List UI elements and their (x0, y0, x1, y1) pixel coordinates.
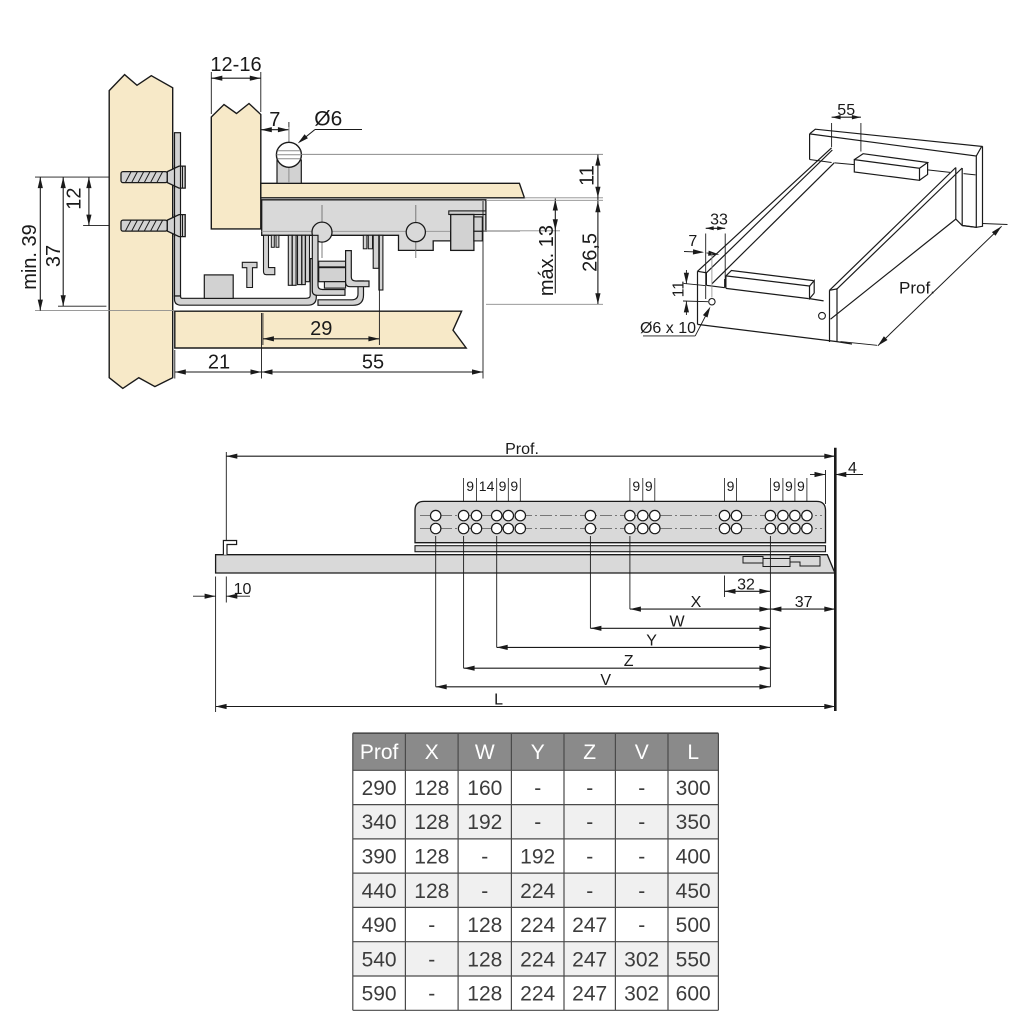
svg-text:-: - (481, 846, 488, 869)
svg-text:32: 32 (737, 576, 755, 593)
svg-text:55: 55 (362, 352, 384, 374)
svg-text:37: 37 (795, 594, 813, 611)
svg-text:W: W (669, 613, 685, 630)
svg-text:9: 9 (773, 478, 781, 494)
svg-text:V: V (635, 741, 649, 764)
svg-text:Prof.: Prof. (505, 441, 539, 458)
svg-text:Prof: Prof (360, 741, 399, 764)
svg-text:10: 10 (234, 581, 252, 598)
svg-text:-: - (586, 811, 593, 834)
svg-text:400: 400 (676, 846, 711, 869)
svg-text:224: 224 (520, 880, 555, 903)
svg-text:12-16: 12-16 (210, 54, 261, 76)
svg-text:7: 7 (269, 109, 280, 131)
svg-text:247: 247 (572, 914, 607, 937)
svg-text:-: - (586, 846, 593, 869)
svg-text:9: 9 (645, 478, 653, 494)
svg-text:-: - (638, 777, 645, 800)
svg-text:9: 9 (727, 478, 735, 494)
svg-text:600: 600 (676, 983, 711, 1006)
svg-text:128: 128 (467, 914, 502, 937)
svg-text:247: 247 (572, 983, 607, 1006)
svg-text:37: 37 (43, 245, 65, 267)
svg-text:440: 440 (362, 880, 397, 903)
svg-text:290: 290 (362, 777, 397, 800)
svg-text:9: 9 (466, 478, 474, 494)
svg-text:W: W (475, 741, 495, 764)
svg-text:590: 590 (362, 983, 397, 1006)
svg-text:Ø6: Ø6 (314, 108, 342, 131)
svg-text:-: - (638, 811, 645, 834)
svg-text:12: 12 (64, 187, 86, 209)
svg-text:550: 550 (676, 948, 711, 971)
svg-text:9: 9 (785, 478, 793, 494)
svg-text:9: 9 (510, 478, 518, 494)
svg-text:-: - (586, 777, 593, 800)
svg-text:224: 224 (520, 983, 555, 1006)
svg-text:-: - (638, 914, 645, 937)
svg-text:9: 9 (797, 478, 805, 494)
svg-text:128: 128 (414, 811, 449, 834)
svg-text:-: - (481, 880, 488, 903)
svg-text:490: 490 (362, 914, 397, 937)
svg-text:390: 390 (362, 846, 397, 869)
svg-text:26,5: 26,5 (579, 233, 601, 272)
svg-text:300: 300 (676, 777, 711, 800)
svg-text:-: - (586, 880, 593, 903)
svg-text:29: 29 (310, 318, 332, 340)
svg-text:máx. 13: máx. 13 (536, 225, 558, 296)
svg-text:Y: Y (531, 741, 545, 764)
svg-text:Z: Z (583, 741, 596, 764)
svg-text:9: 9 (632, 478, 640, 494)
svg-text:302: 302 (624, 948, 659, 971)
svg-text:-: - (428, 983, 435, 1006)
svg-text:247: 247 (572, 948, 607, 971)
svg-text:Ø6 x 10: Ø6 x 10 (640, 320, 696, 337)
svg-text:192: 192 (467, 811, 502, 834)
svg-text:Prof.: Prof. (899, 279, 935, 298)
svg-text:Y: Y (646, 632, 657, 649)
svg-text:128: 128 (467, 948, 502, 971)
svg-text:450: 450 (676, 880, 711, 903)
svg-text:min. 39: min. 39 (19, 224, 41, 290)
svg-text:-: - (534, 811, 541, 834)
svg-text:-: - (428, 914, 435, 937)
svg-text:X: X (691, 594, 702, 611)
svg-text:55: 55 (837, 102, 855, 119)
svg-text:L: L (687, 741, 699, 764)
svg-text:33: 33 (710, 212, 728, 229)
svg-text:Z: Z (624, 653, 634, 670)
svg-text:160: 160 (467, 777, 502, 800)
svg-text:X: X (425, 741, 439, 764)
svg-text:4: 4 (848, 460, 857, 477)
svg-text:540: 540 (362, 948, 397, 971)
svg-text:128: 128 (467, 983, 502, 1006)
svg-text:14: 14 (479, 478, 495, 494)
svg-text:128: 128 (414, 880, 449, 903)
svg-text:302: 302 (624, 983, 659, 1006)
svg-text:340: 340 (362, 811, 397, 834)
svg-text:224: 224 (520, 948, 555, 971)
svg-text:7: 7 (688, 233, 697, 250)
svg-text:V: V (600, 672, 611, 689)
svg-text:192: 192 (520, 846, 555, 869)
svg-text:350: 350 (676, 811, 711, 834)
svg-text:500: 500 (676, 914, 711, 937)
svg-text:-: - (534, 777, 541, 800)
svg-text:224: 224 (520, 914, 555, 937)
svg-text:-: - (638, 846, 645, 869)
svg-text:11: 11 (670, 281, 687, 298)
svg-text:9: 9 (499, 478, 507, 494)
svg-text:11: 11 (577, 165, 599, 186)
svg-text:128: 128 (414, 777, 449, 800)
svg-text:L: L (494, 692, 503, 709)
svg-text:21: 21 (208, 352, 230, 374)
svg-text:128: 128 (414, 846, 449, 869)
svg-text:-: - (638, 880, 645, 903)
svg-text:-: - (428, 948, 435, 971)
